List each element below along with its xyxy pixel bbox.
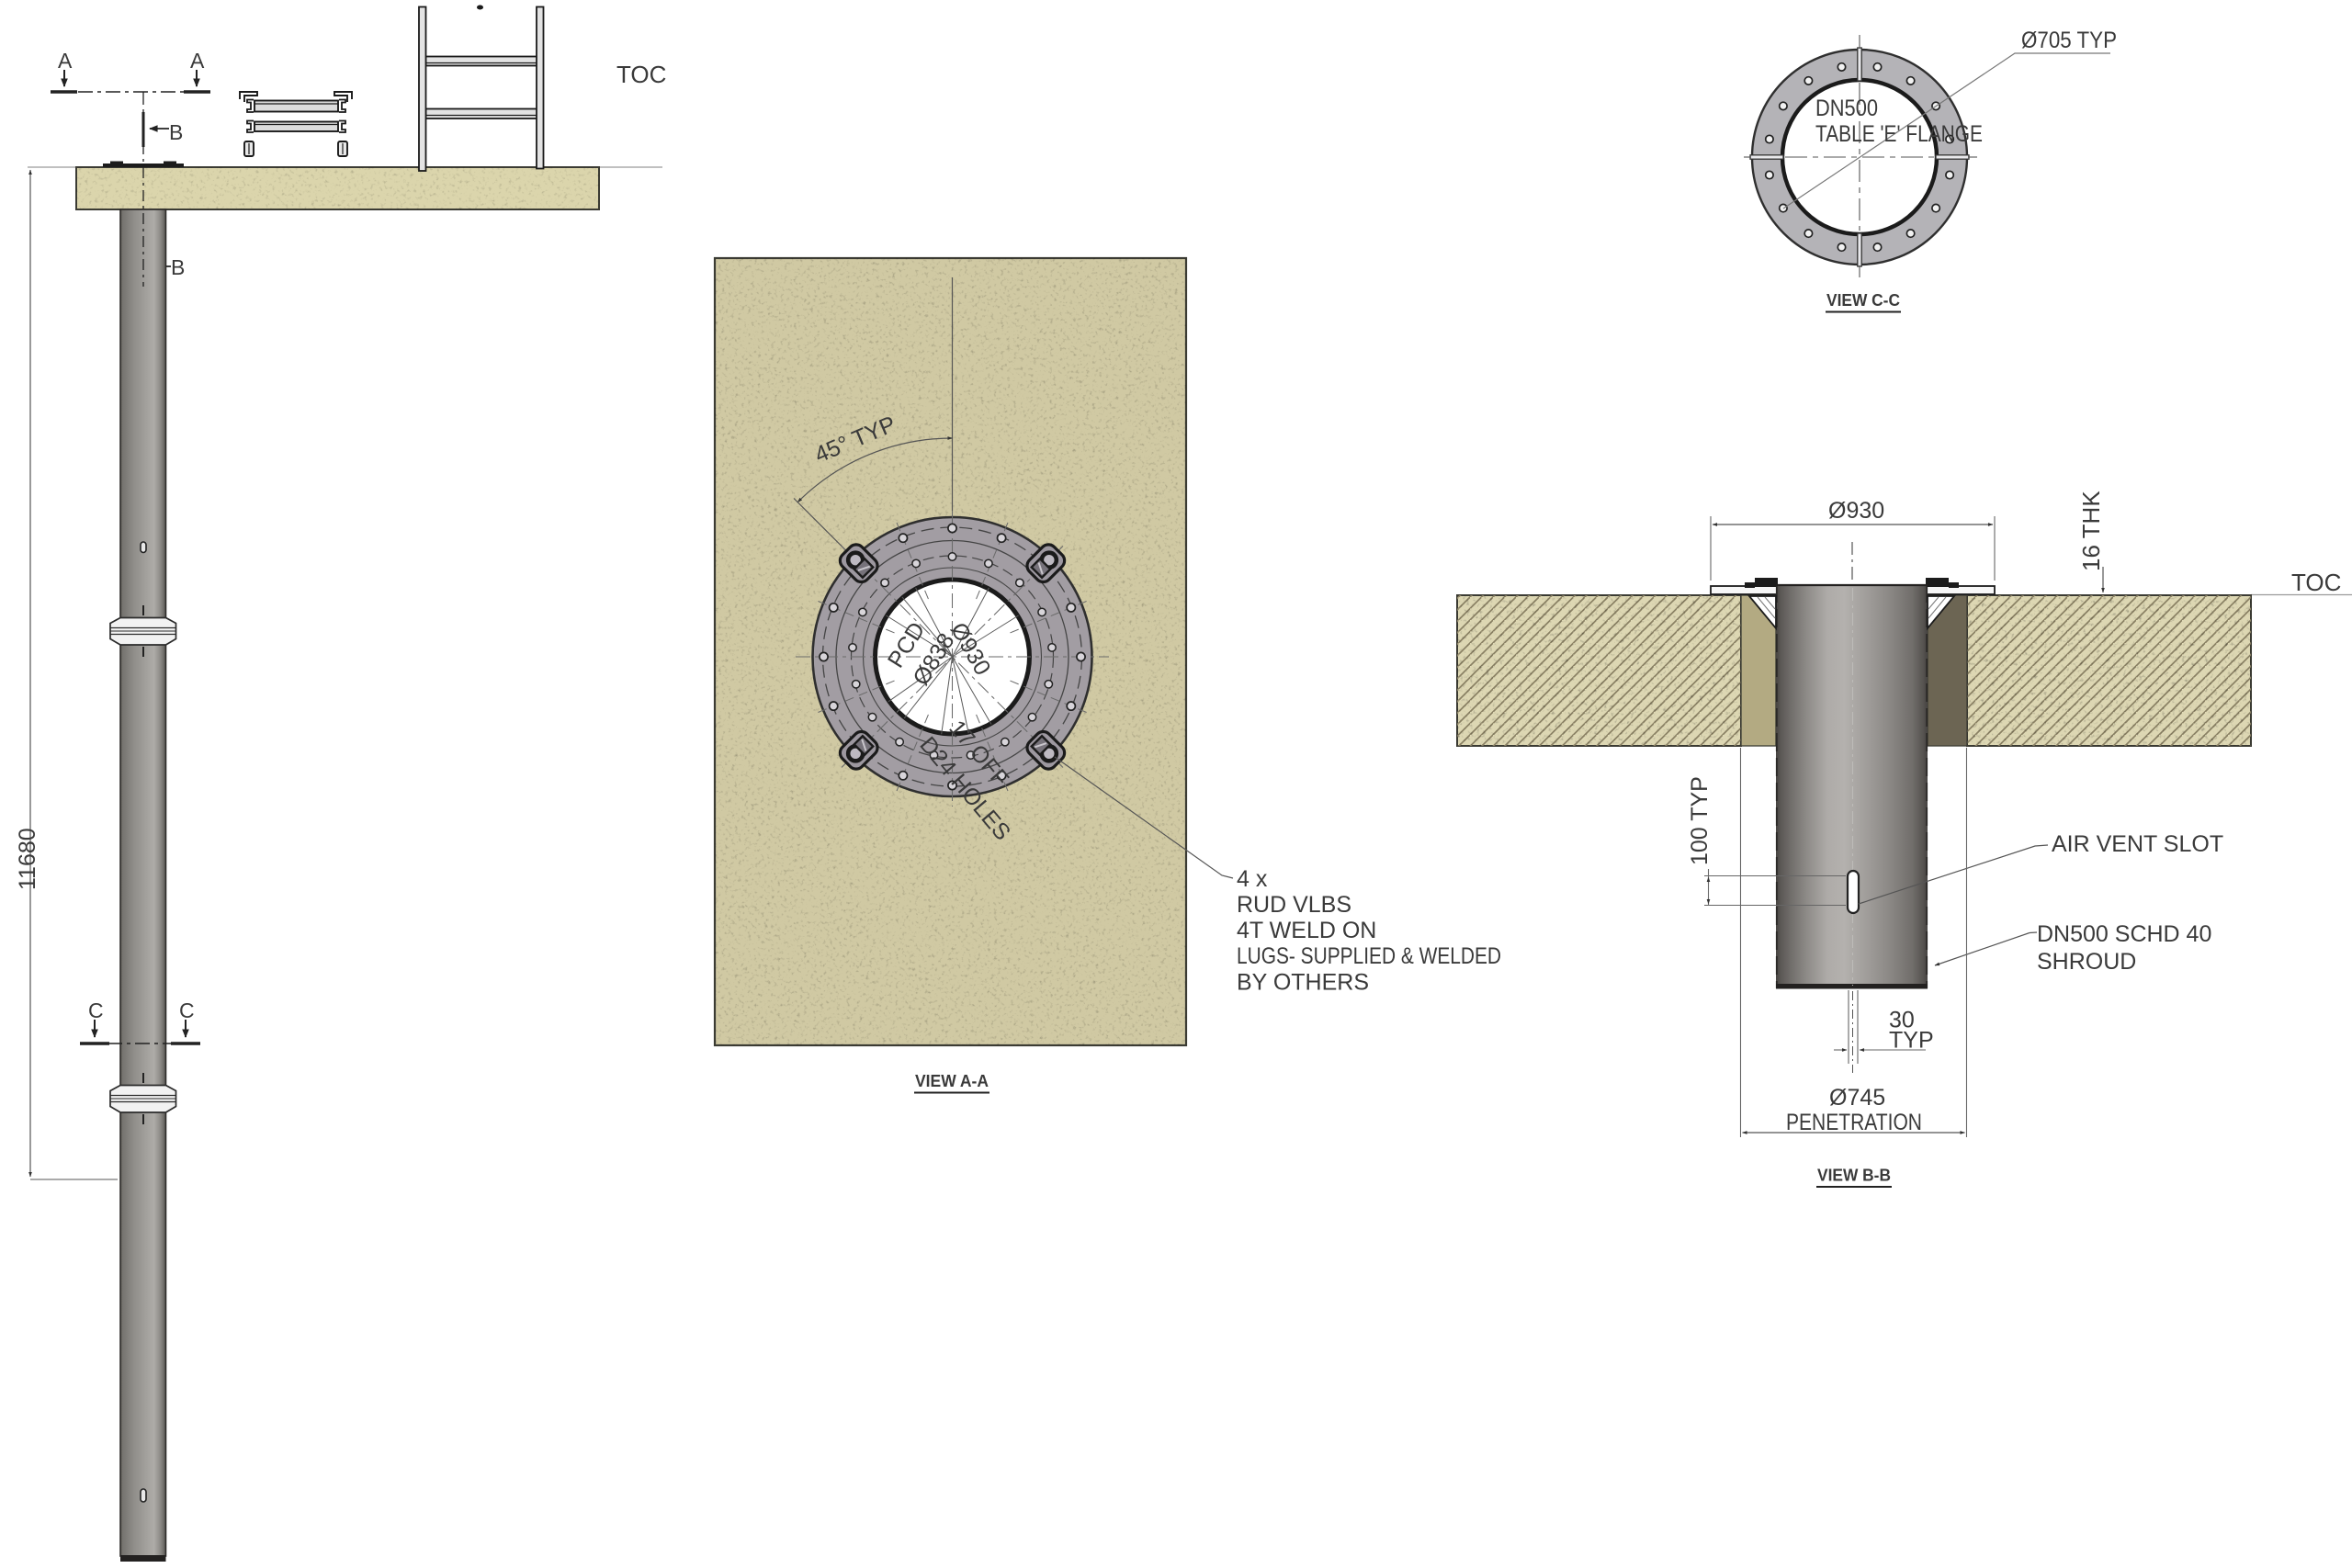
svg-text:4 x: 4 x [1237, 866, 1268, 892]
svg-text:Ø930: Ø930 [1828, 498, 1884, 524]
svg-text:RUD VLBS: RUD VLBS [1237, 892, 1351, 918]
svg-text:AIR VENT SLOT: AIR VENT SLOT [2052, 831, 2223, 857]
svg-text:TYP: TYP [1889, 1028, 1934, 1054]
svg-text:B: B [171, 255, 185, 279]
svg-text:SHROUD: SHROUD [2037, 949, 2136, 975]
svg-text:C: C [88, 998, 104, 1022]
svg-text:VIEW A-A: VIEW A-A [915, 1071, 989, 1090]
svg-text:VIEW B-B: VIEW B-B [1817, 1166, 1891, 1185]
svg-text:16 THK: 16 THK [2077, 491, 2105, 571]
svg-text:B: B [169, 120, 183, 144]
svg-text:DN500 SCHD 40: DN500 SCHD 40 [2037, 921, 2211, 947]
svg-text:TABLE 'E' FLANGE: TABLE 'E' FLANGE [1815, 121, 1983, 147]
svg-text:BY OTHERS: BY OTHERS [1237, 970, 1369, 996]
svg-text:TOC: TOC [2291, 569, 2341, 596]
svg-text:VIEW C-C: VIEW C-C [1826, 290, 1900, 310]
svg-text:A: A [190, 49, 205, 73]
svg-text:Ø745: Ø745 [1829, 1085, 1885, 1111]
svg-text:4T WELD ON: 4T WELD ON [1237, 918, 1376, 943]
svg-text:C: C [179, 998, 195, 1022]
svg-text:PENETRATION: PENETRATION [1786, 1110, 1922, 1135]
svg-text:A: A [58, 49, 73, 73]
svg-text:TOC: TOC [616, 61, 666, 88]
svg-text:100 TYP: 100 TYP [1687, 776, 1713, 865]
svg-text:LUGS- SUPPLIED & WELDED: LUGS- SUPPLIED & WELDED [1237, 943, 1501, 969]
svg-text:Ø705 TYP: Ø705 TYP [2021, 28, 2117, 53]
svg-text:11680: 11680 [15, 828, 40, 890]
svg-text:DN500: DN500 [1815, 96, 1878, 121]
